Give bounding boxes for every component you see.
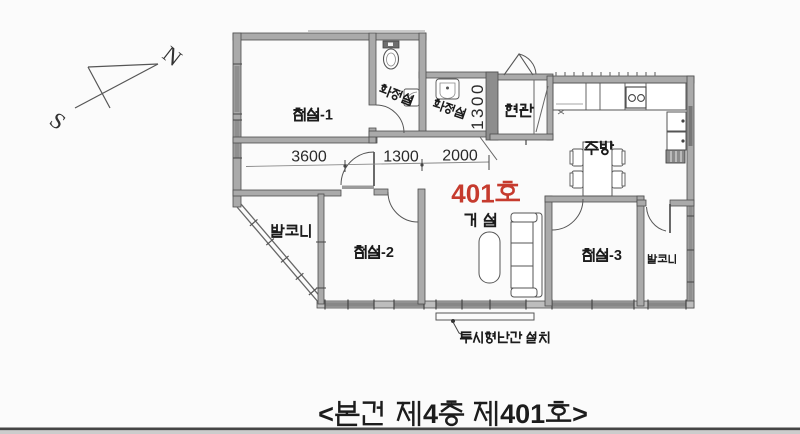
- svg-text:401: 401: [500, 399, 545, 429]
- svg-text:1300: 1300: [383, 149, 419, 166]
- svg-text:-1: -1: [320, 108, 333, 124]
- svg-text:<: <: [318, 399, 334, 429]
- svg-text:-2: -2: [381, 245, 394, 261]
- svg-text:4: 4: [423, 399, 438, 429]
- svg-text:1300: 1300: [468, 82, 487, 130]
- svg-text:3600: 3600: [291, 149, 327, 166]
- svg-text:401: 401: [451, 178, 494, 208]
- svg-text:2000: 2000: [442, 148, 478, 165]
- svg-text:-3: -3: [609, 248, 622, 264]
- svg-text:>: >: [572, 399, 588, 429]
